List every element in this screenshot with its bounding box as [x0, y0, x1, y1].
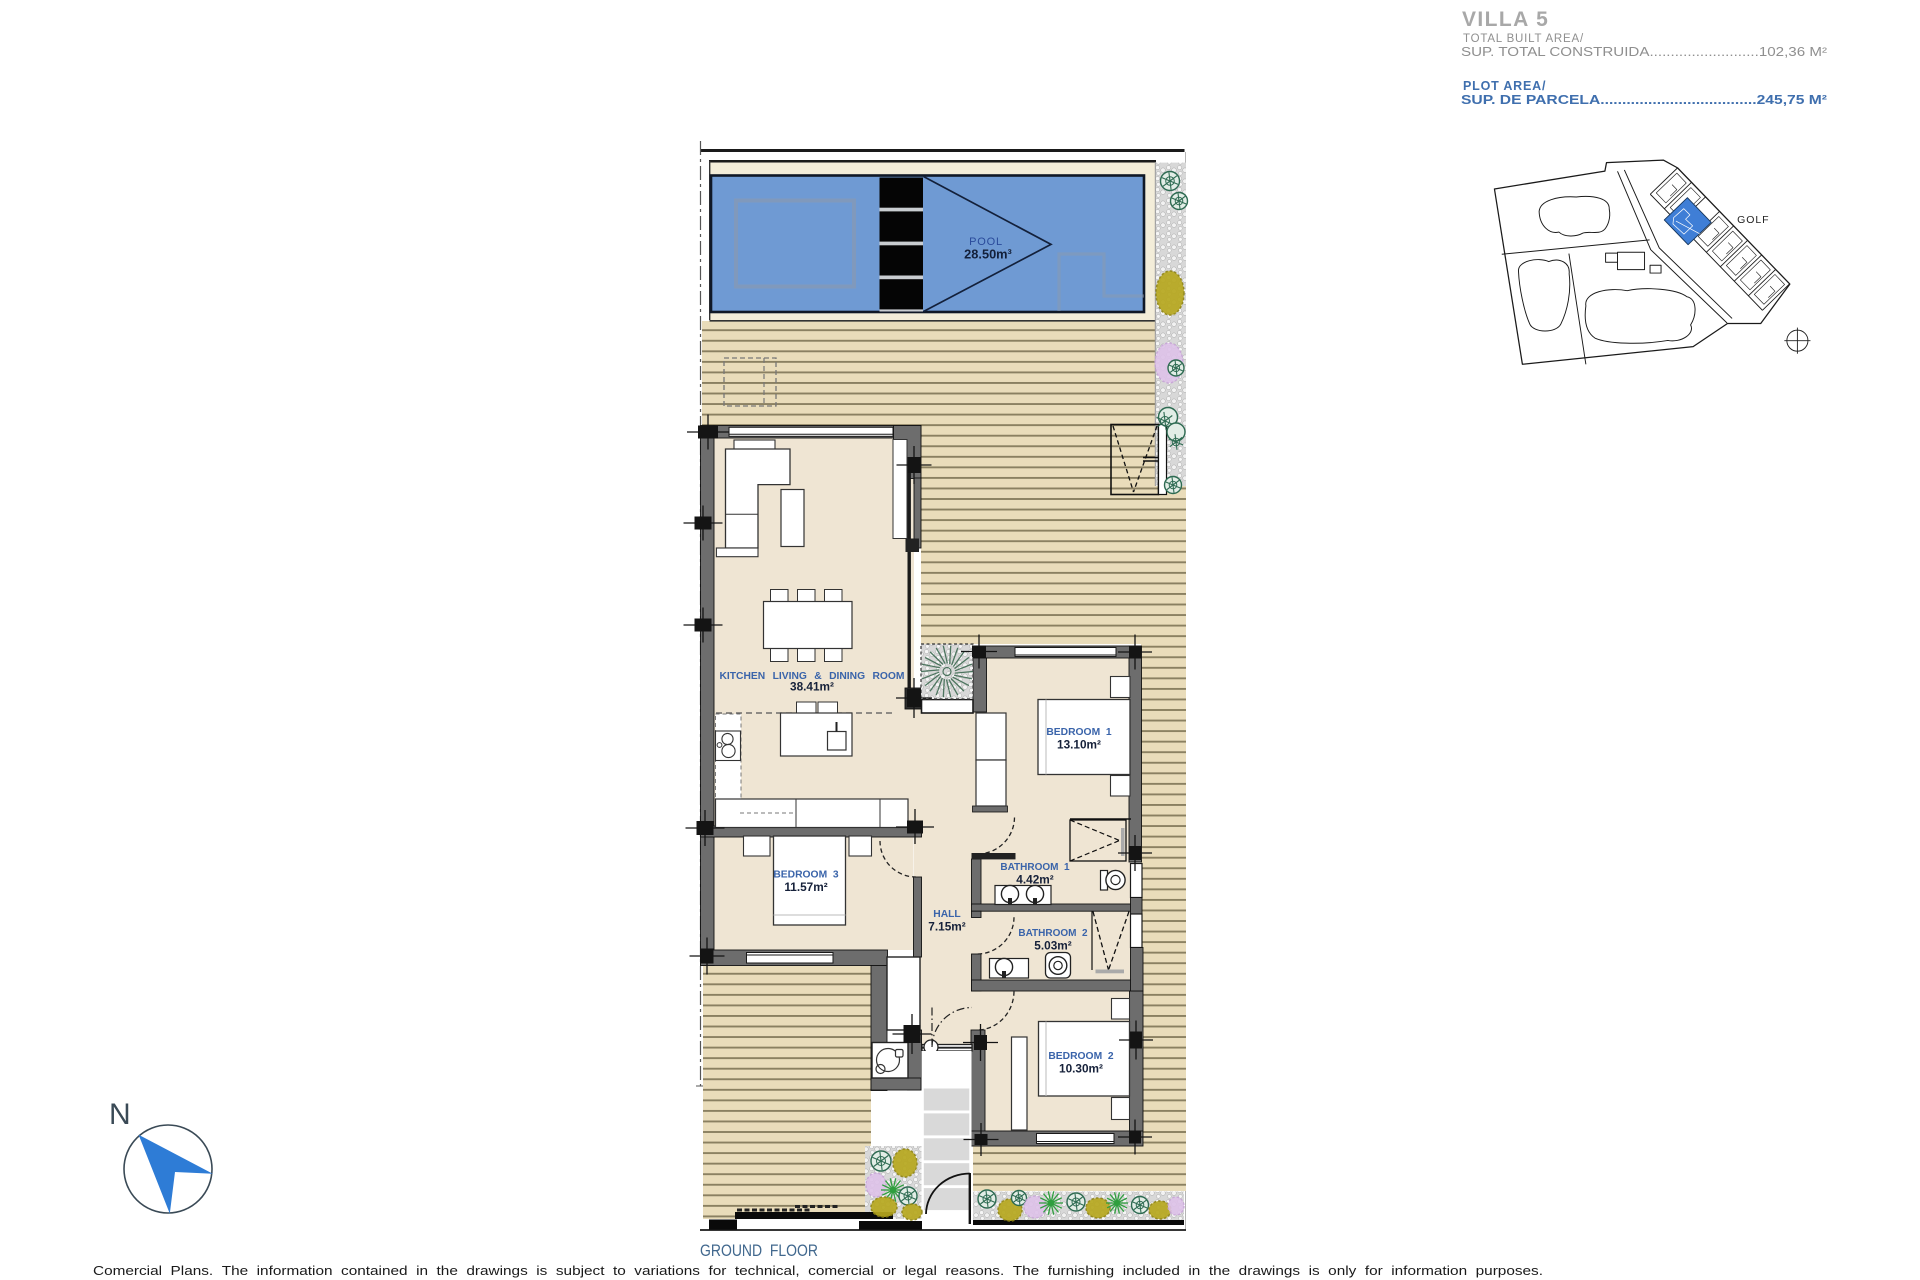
svg-text:10.30m²: 10.30m²	[1059, 1062, 1103, 1076]
svg-text:GROUND FLOOR: GROUND FLOOR	[700, 1242, 818, 1260]
svg-text:HALL: HALL	[933, 909, 960, 920]
svg-text:PLOT AREA/: PLOT AREA/	[1463, 79, 1546, 93]
svg-text:28.50m³: 28.50m³	[964, 247, 1012, 262]
svg-text:N: N	[109, 1098, 131, 1131]
svg-text:GOLF: GOLF	[1737, 214, 1769, 226]
svg-text:11.57m²: 11.57m²	[784, 880, 827, 894]
svg-text:BEDROOM 3: BEDROOM 3	[773, 870, 838, 881]
svg-text:BEDROOM 2: BEDROOM 2	[1048, 1051, 1113, 1062]
svg-text:5.03m²: 5.03m²	[1034, 939, 1071, 953]
svg-text:VILLA 5: VILLA 5	[1462, 8, 1549, 31]
svg-text:BATHROOM 1: BATHROOM 1	[1000, 862, 1070, 873]
svg-text:13.10m²: 13.10m²	[1057, 738, 1101, 752]
svg-text:7.15m²: 7.15m²	[928, 920, 965, 934]
svg-text:38.41m²: 38.41m²	[790, 680, 834, 694]
svg-text:BATHROOM 2: BATHROOM 2	[1018, 928, 1088, 939]
svg-text:SUP. TOTAL CONSTRUIDA.........: SUP. TOTAL CONSTRUIDA...................…	[1461, 45, 1827, 59]
svg-text:Comercial Plans. The inform: Comercial Plans. The information contain…	[93, 1263, 1543, 1278]
svg-text:SUP. DE PARCELA...............: SUP. DE PARCELA.........................…	[1461, 93, 1827, 107]
svg-text:BEDROOM 1: BEDROOM 1	[1046, 727, 1111, 738]
svg-text:4.42m²: 4.42m²	[1016, 873, 1053, 887]
svg-text:TOTAL BUILT AREA/: TOTAL BUILT AREA/	[1463, 33, 1584, 45]
